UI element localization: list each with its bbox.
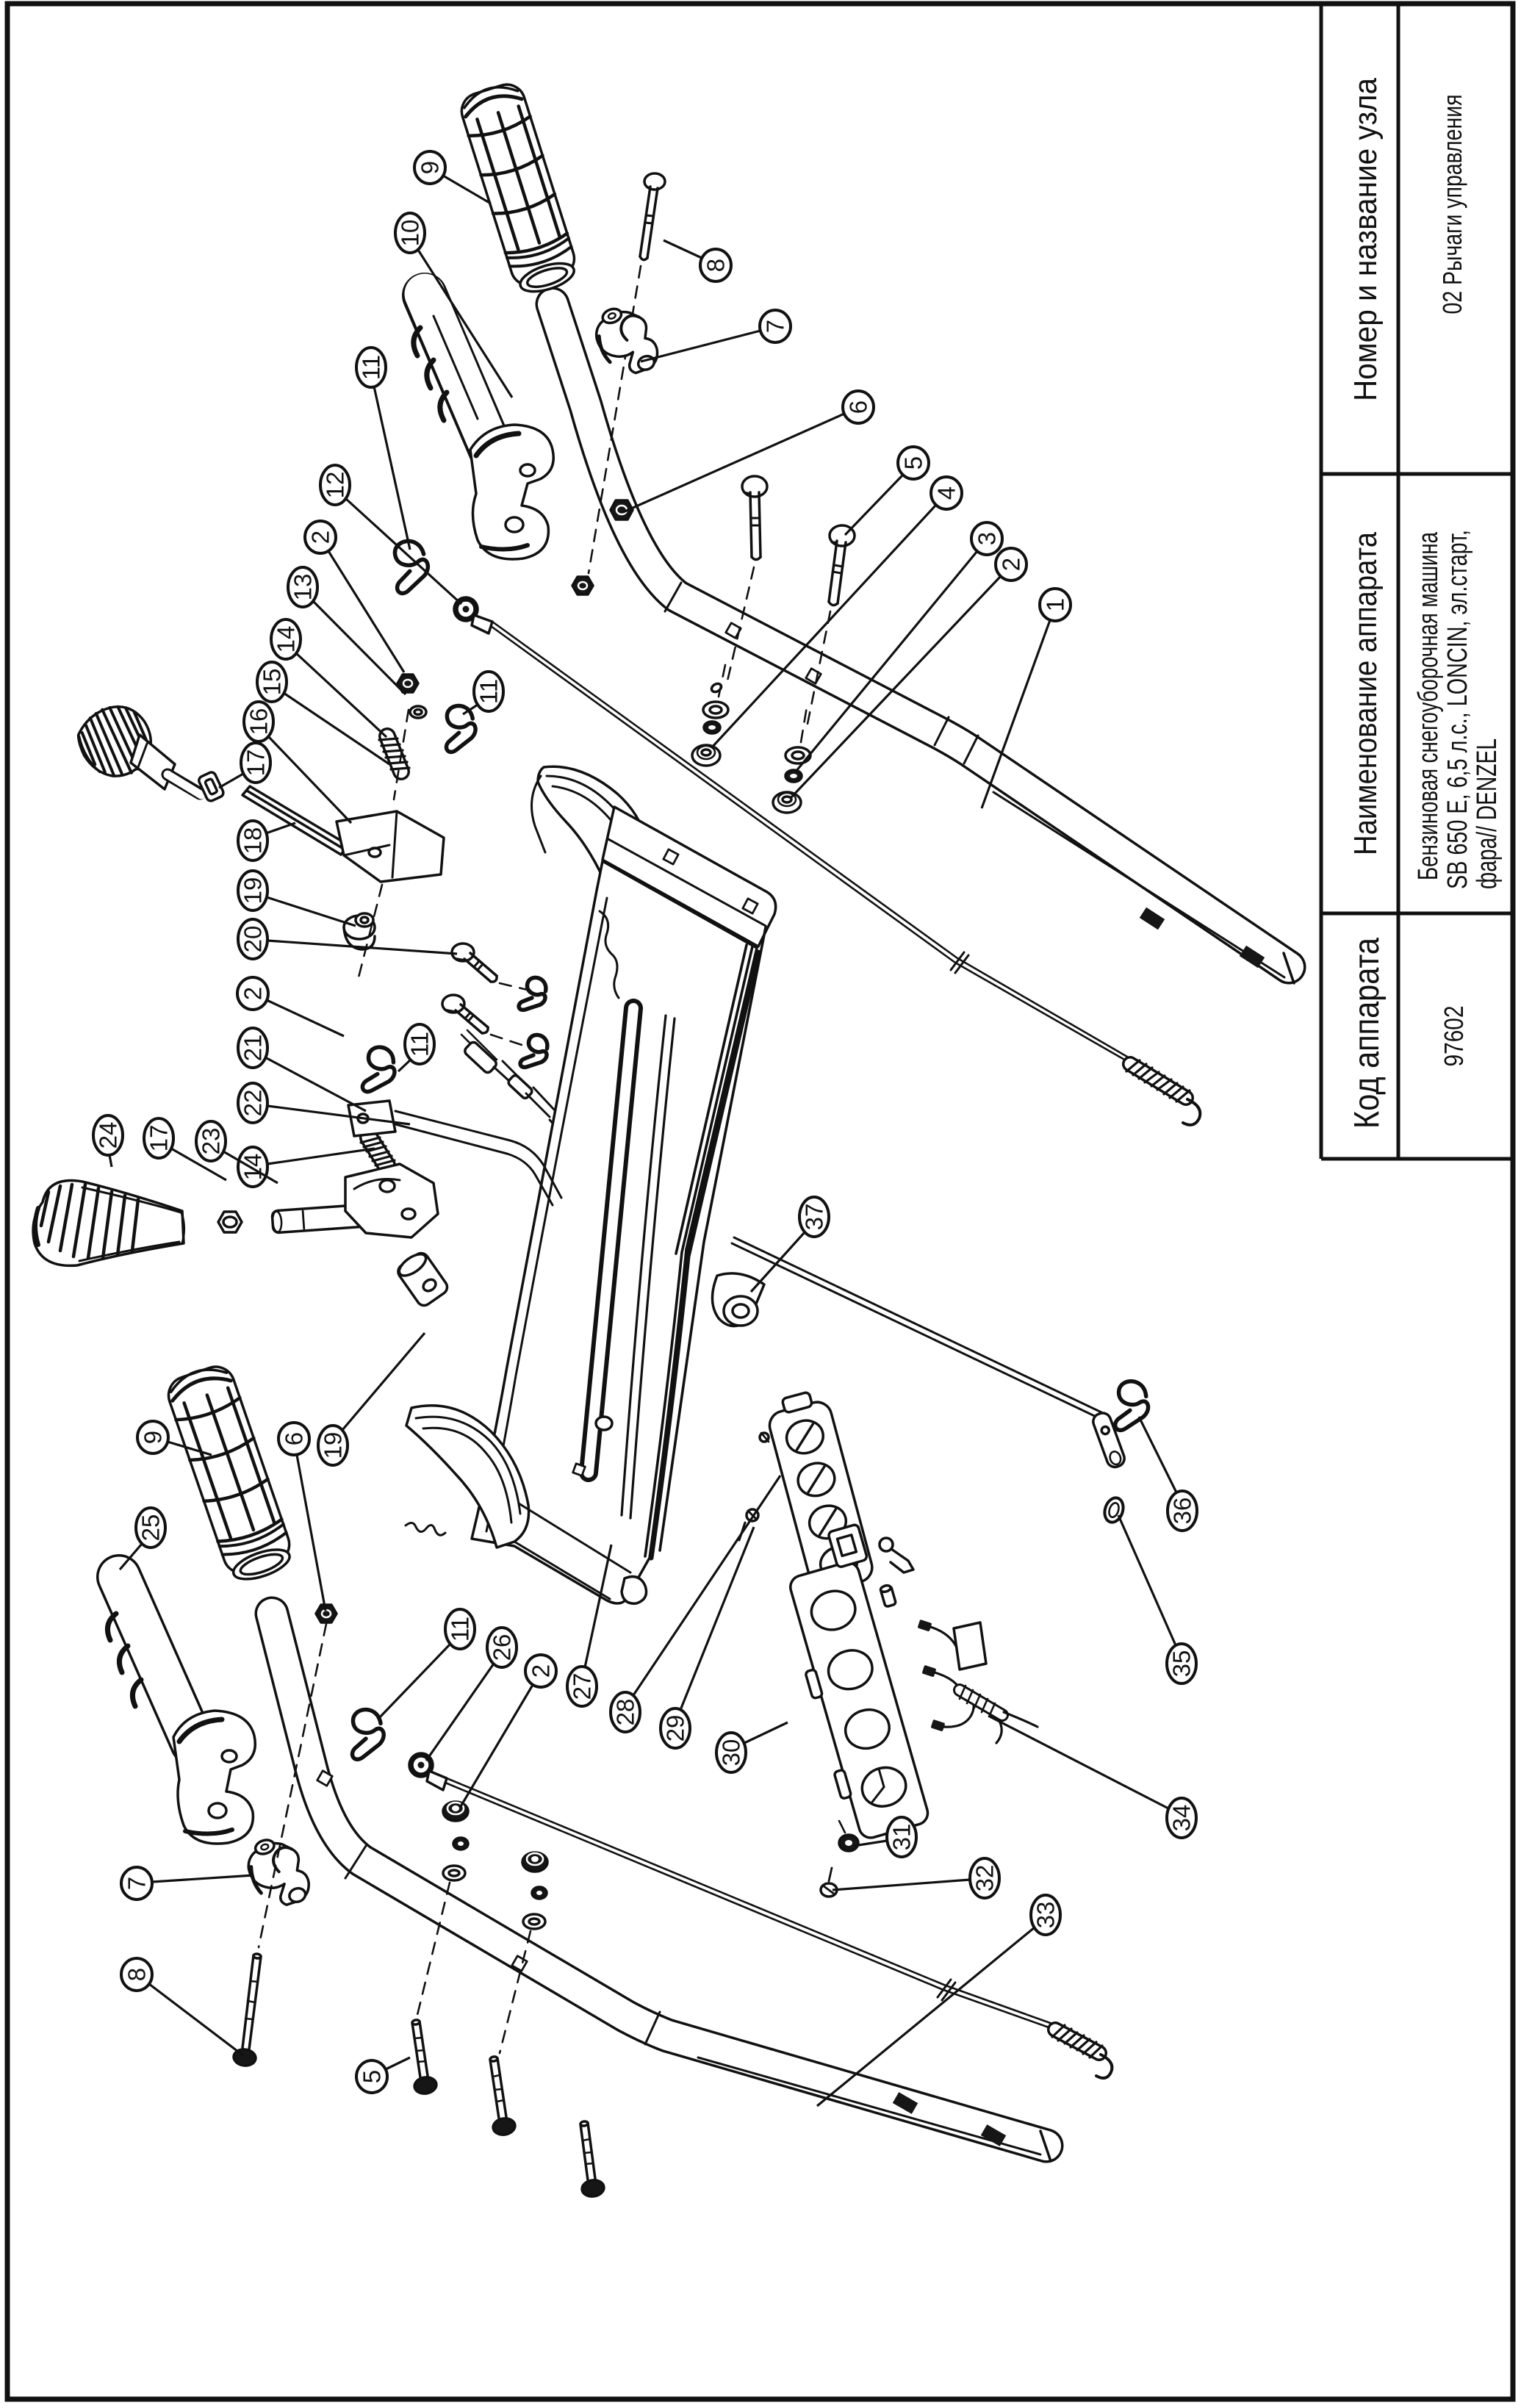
svg-text:6: 6 [281, 1432, 308, 1445]
svg-text:10: 10 [397, 220, 424, 247]
svg-text:21: 21 [240, 1035, 267, 1062]
svg-text:22: 22 [240, 1090, 267, 1117]
svg-text:31: 31 [888, 1824, 916, 1851]
svg-text:24: 24 [95, 1122, 122, 1149]
svg-text:33: 33 [1032, 1902, 1060, 1929]
svg-text:9: 9 [417, 161, 444, 174]
svg-text:27: 27 [569, 1673, 596, 1700]
svg-text:30: 30 [718, 1739, 745, 1767]
svg-text:2: 2 [307, 531, 334, 544]
svg-text:14: 14 [273, 626, 300, 653]
svg-text:12: 12 [322, 472, 349, 499]
svg-text:19: 19 [320, 1432, 347, 1459]
svg-text:29: 29 [662, 1715, 689, 1742]
svg-text:2: 2 [240, 987, 267, 1000]
svg-text:6: 6 [845, 400, 872, 414]
svg-text:02 Рычаги управления: 02 Рычаги управления [1437, 95, 1467, 315]
svg-text:19: 19 [240, 877, 267, 905]
svg-text:26: 26 [489, 1634, 516, 1661]
svg-text:11: 11 [447, 1617, 474, 1642]
svg-text:34: 34 [1168, 1805, 1195, 1832]
svg-text:1: 1 [1042, 598, 1069, 611]
svg-text:37: 37 [801, 1204, 828, 1231]
svg-text:17: 17 [242, 750, 270, 777]
svg-text:32: 32 [971, 1865, 999, 1892]
svg-text:5: 5 [359, 2070, 386, 2083]
svg-text:16: 16 [245, 708, 273, 736]
svg-text:13: 13 [290, 574, 317, 601]
svg-text:17: 17 [145, 1125, 173, 1152]
svg-text:SB 650 E, 6,5 л.с., LONCIN, эл: SB 650 E, 6,5 л.с., LONCIN, эл.старт, [1442, 530, 1473, 889]
svg-text:7: 7 [123, 1877, 151, 1890]
svg-text:36: 36 [1169, 1498, 1196, 1525]
svg-text:9: 9 [140, 1431, 167, 1444]
svg-text:23: 23 [198, 1128, 225, 1155]
svg-text:28: 28 [612, 1699, 639, 1726]
svg-text:97602: 97602 [1439, 1006, 1469, 1067]
svg-text:25: 25 [137, 1514, 165, 1542]
svg-text:5: 5 [900, 456, 927, 470]
svg-text:35: 35 [1168, 1650, 1195, 1678]
svg-text:11: 11 [475, 679, 503, 704]
svg-text:Номер и название узла: Номер и название узла [1348, 78, 1384, 401]
svg-text:Код аппарата: Код аппарата [1348, 938, 1387, 1129]
svg-text:11: 11 [406, 1032, 434, 1057]
svg-text:8: 8 [702, 259, 730, 272]
svg-text:2: 2 [528, 1664, 555, 1678]
svg-text:8: 8 [123, 1968, 151, 1981]
svg-text:фара// DENZEL: фара// DENZEL [1472, 738, 1503, 889]
svg-text:20: 20 [240, 926, 267, 953]
svg-text:11: 11 [358, 355, 385, 380]
svg-text:4: 4 [933, 486, 960, 500]
svg-text:18: 18 [240, 827, 267, 855]
svg-text:14: 14 [240, 1154, 267, 1181]
svg-text:3: 3 [974, 532, 1001, 545]
svg-text:2: 2 [998, 558, 1025, 571]
svg-text:7: 7 [762, 320, 789, 333]
svg-text:Бензиновая снегоуборочная маши: Бензиновая снегоуборочная машина [1413, 531, 1444, 880]
svg-text:15: 15 [259, 669, 286, 696]
svg-text:Наименование аппарата: Наименование аппарата [1348, 532, 1384, 855]
